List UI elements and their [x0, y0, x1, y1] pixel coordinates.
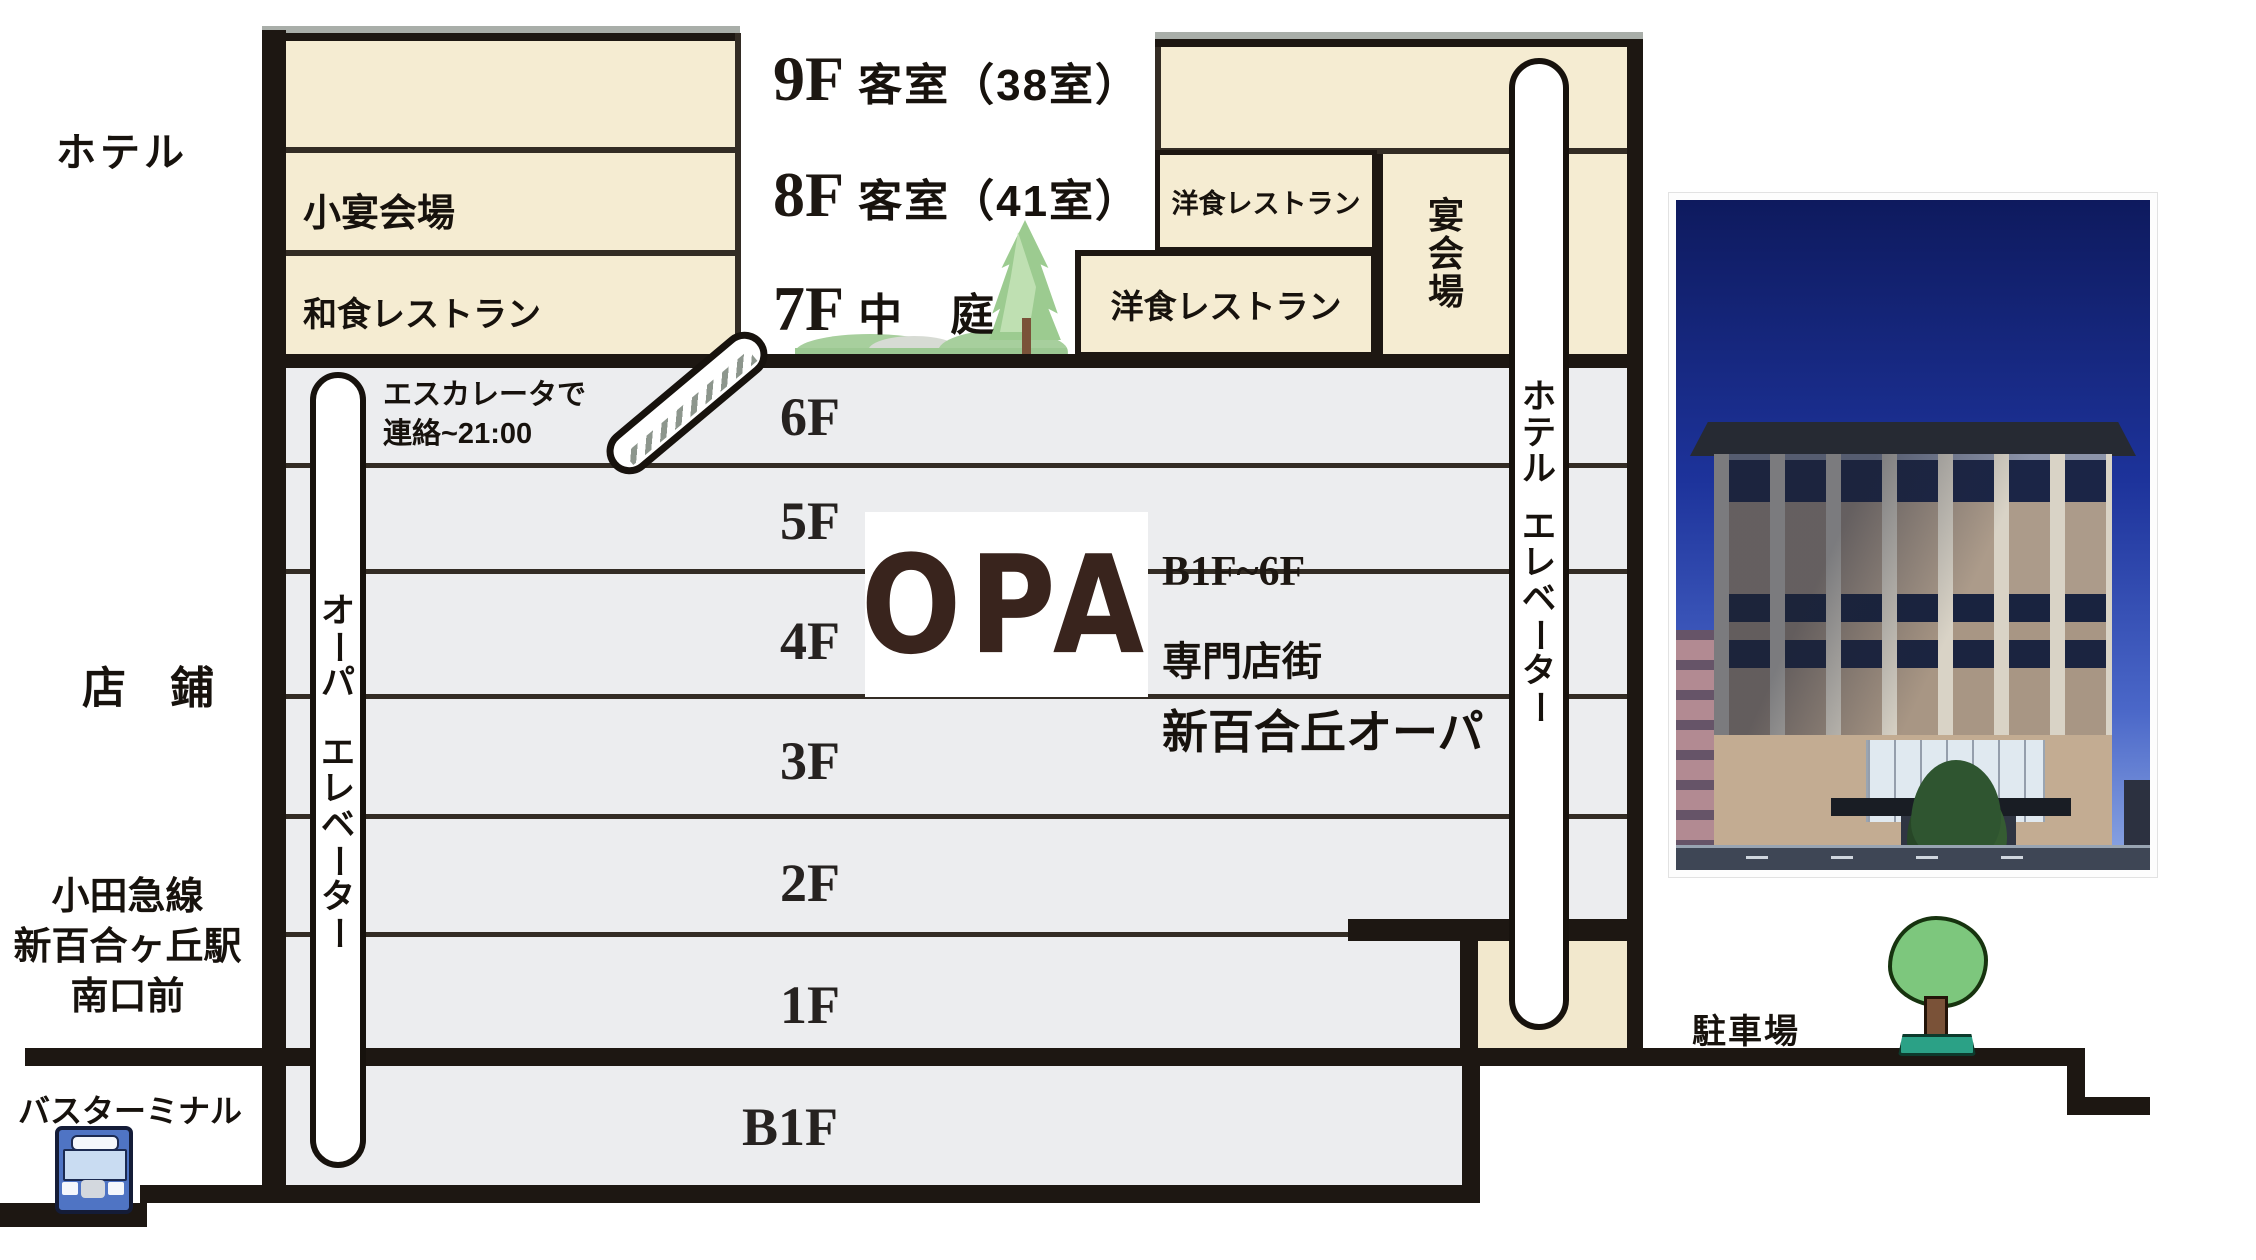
- bus-headlight-left: [62, 1182, 78, 1195]
- floor-9f-number: 9F: [773, 42, 844, 116]
- floor-8f-label: 客室（41室）: [858, 165, 1141, 229]
- escalator-note-line2: 連絡~21:00: [383, 415, 586, 454]
- right-block-top-line: [1155, 39, 1643, 47]
- left-block-top-cap: [262, 26, 740, 33]
- station-line-name: 小田急線: [5, 872, 250, 922]
- left-block-row-line-2: [286, 250, 735, 256]
- bus-grill: [81, 1180, 105, 1198]
- basement-right-wall: [1462, 1048, 1480, 1203]
- floor-label-5f: 5F: [765, 490, 855, 552]
- parking-tree-base: [1898, 1034, 1976, 1056]
- opa-elevator-label-1: オーパ: [321, 593, 355, 701]
- right-block-left-border: [1155, 47, 1161, 154]
- escalator-note-line1: エスカレータで: [383, 376, 586, 415]
- hotel-bottom-thick-line: [262, 354, 1643, 368]
- opa-floor-range: B1F~6F: [1162, 548, 1305, 596]
- floor-label-3f: 3F: [765, 730, 855, 792]
- floor-label-6f: 6F: [765, 386, 855, 448]
- photo-right-silhouette: [2124, 780, 2150, 846]
- floor-9f-label: 客室（38室）: [858, 49, 1141, 113]
- left-block-row-line-1: [286, 147, 735, 153]
- western-restaurant-7f-label: 洋食レストラン: [1111, 280, 1342, 328]
- entrance-left-wall: [1460, 919, 1478, 1048]
- station-name: 新百合ヶ丘駅: [5, 922, 250, 972]
- photo-neighbor-building: [1676, 630, 1716, 845]
- building-photo: [1668, 192, 2158, 878]
- parking-tree-icon: [1888, 916, 1988, 1008]
- floor-7f-label: 中 庭: [858, 279, 996, 343]
- hotel-elevator-label-2: エレベーター: [1522, 509, 1556, 725]
- right-block-top-cap: [1155, 32, 1643, 39]
- floor-label-1f: 1F: [765, 974, 855, 1036]
- ground-step-vertical: [2067, 1048, 2085, 1115]
- bus-terminal-label: バスターミナル: [18, 1086, 242, 1132]
- floor-8f-number: 8F: [773, 158, 844, 232]
- floor-7f-heading: 7F 中 庭: [773, 272, 996, 346]
- floor-label-b1f: B1F: [715, 1096, 865, 1158]
- japanese-restaurant-label: 和食レストラン: [303, 287, 541, 336]
- photo-roof: [1690, 422, 2136, 456]
- western-restaurant-7f-box: 洋食レストラン: [1075, 250, 1377, 358]
- parking-label: 駐車場: [1692, 1004, 1800, 1053]
- building-bottom-line: [140, 1185, 1480, 1203]
- station-exit: 南口前: [5, 972, 250, 1022]
- small-banquet-label: 小宴会場: [303, 182, 455, 237]
- building-left-wall: [262, 30, 286, 1203]
- hotel-elevator-label-1: ホテル: [1522, 379, 1556, 487]
- basement-band: [286, 1066, 1462, 1185]
- building-right-wall: [1627, 39, 1643, 1066]
- floor-line-3f-2f: [286, 814, 1627, 819]
- hotel-elevator-shaft: ホテル エレベーター: [1509, 58, 1569, 1030]
- western-restaurant-8f-label: 洋食レストラン: [1172, 182, 1361, 221]
- photo-street-markings: [1746, 856, 2086, 859]
- left-block-top-line: [262, 33, 740, 41]
- opa-name: 新百合丘オーパ: [1162, 696, 1484, 762]
- western-restaurant-8f-box: 洋食レストラン: [1155, 150, 1377, 252]
- ground-step-horizontal: [2085, 1097, 2150, 1115]
- hotel-side-label: ホテル: [56, 120, 188, 178]
- opa-elevator-label-2: エレベーター: [321, 735, 355, 951]
- floor-guide-diagram: 洋食レストラン 洋食レストラン 宴会場 小宴会場 和食レストラン 9F 客室（3…: [0, 0, 2256, 1260]
- bus-headlight-right: [108, 1182, 124, 1195]
- floor-7f-number: 7F: [773, 272, 844, 346]
- left-block-right-border: [735, 33, 741, 358]
- floor-8f-heading: 8F 客室（41室）: [773, 158, 1141, 232]
- opa-type: 専門店街: [1162, 629, 1322, 687]
- floor-label-2f: 2F: [765, 852, 855, 914]
- opa-logo: OPA: [861, 525, 1152, 684]
- shops-side-label: 店 鋪: [82, 652, 214, 716]
- banquet-hall-label: 宴会場: [1428, 197, 1464, 311]
- opa-logo-box: OPA: [865, 512, 1148, 697]
- floor-line-6f-5f: [286, 463, 1627, 468]
- garden-tree-trunk: [1022, 318, 1031, 356]
- entrance-top-bar: [1348, 919, 1643, 941]
- station-label: 小田急線 新百合ヶ丘駅 南口前: [5, 872, 250, 1022]
- banquet-hall-column: 宴会場: [1377, 154, 1509, 354]
- opa-elevator-shaft: オーパ エレベーター: [310, 372, 366, 1168]
- building-photo-image: [1676, 200, 2150, 870]
- bus-icon: [55, 1126, 133, 1214]
- floor-9f-heading: 9F 客室（38室）: [773, 42, 1141, 116]
- escalator-note: エスカレータで 連絡~21:00: [383, 376, 586, 454]
- bus-window: [63, 1149, 127, 1181]
- floor-label-4f: 4F: [765, 610, 855, 672]
